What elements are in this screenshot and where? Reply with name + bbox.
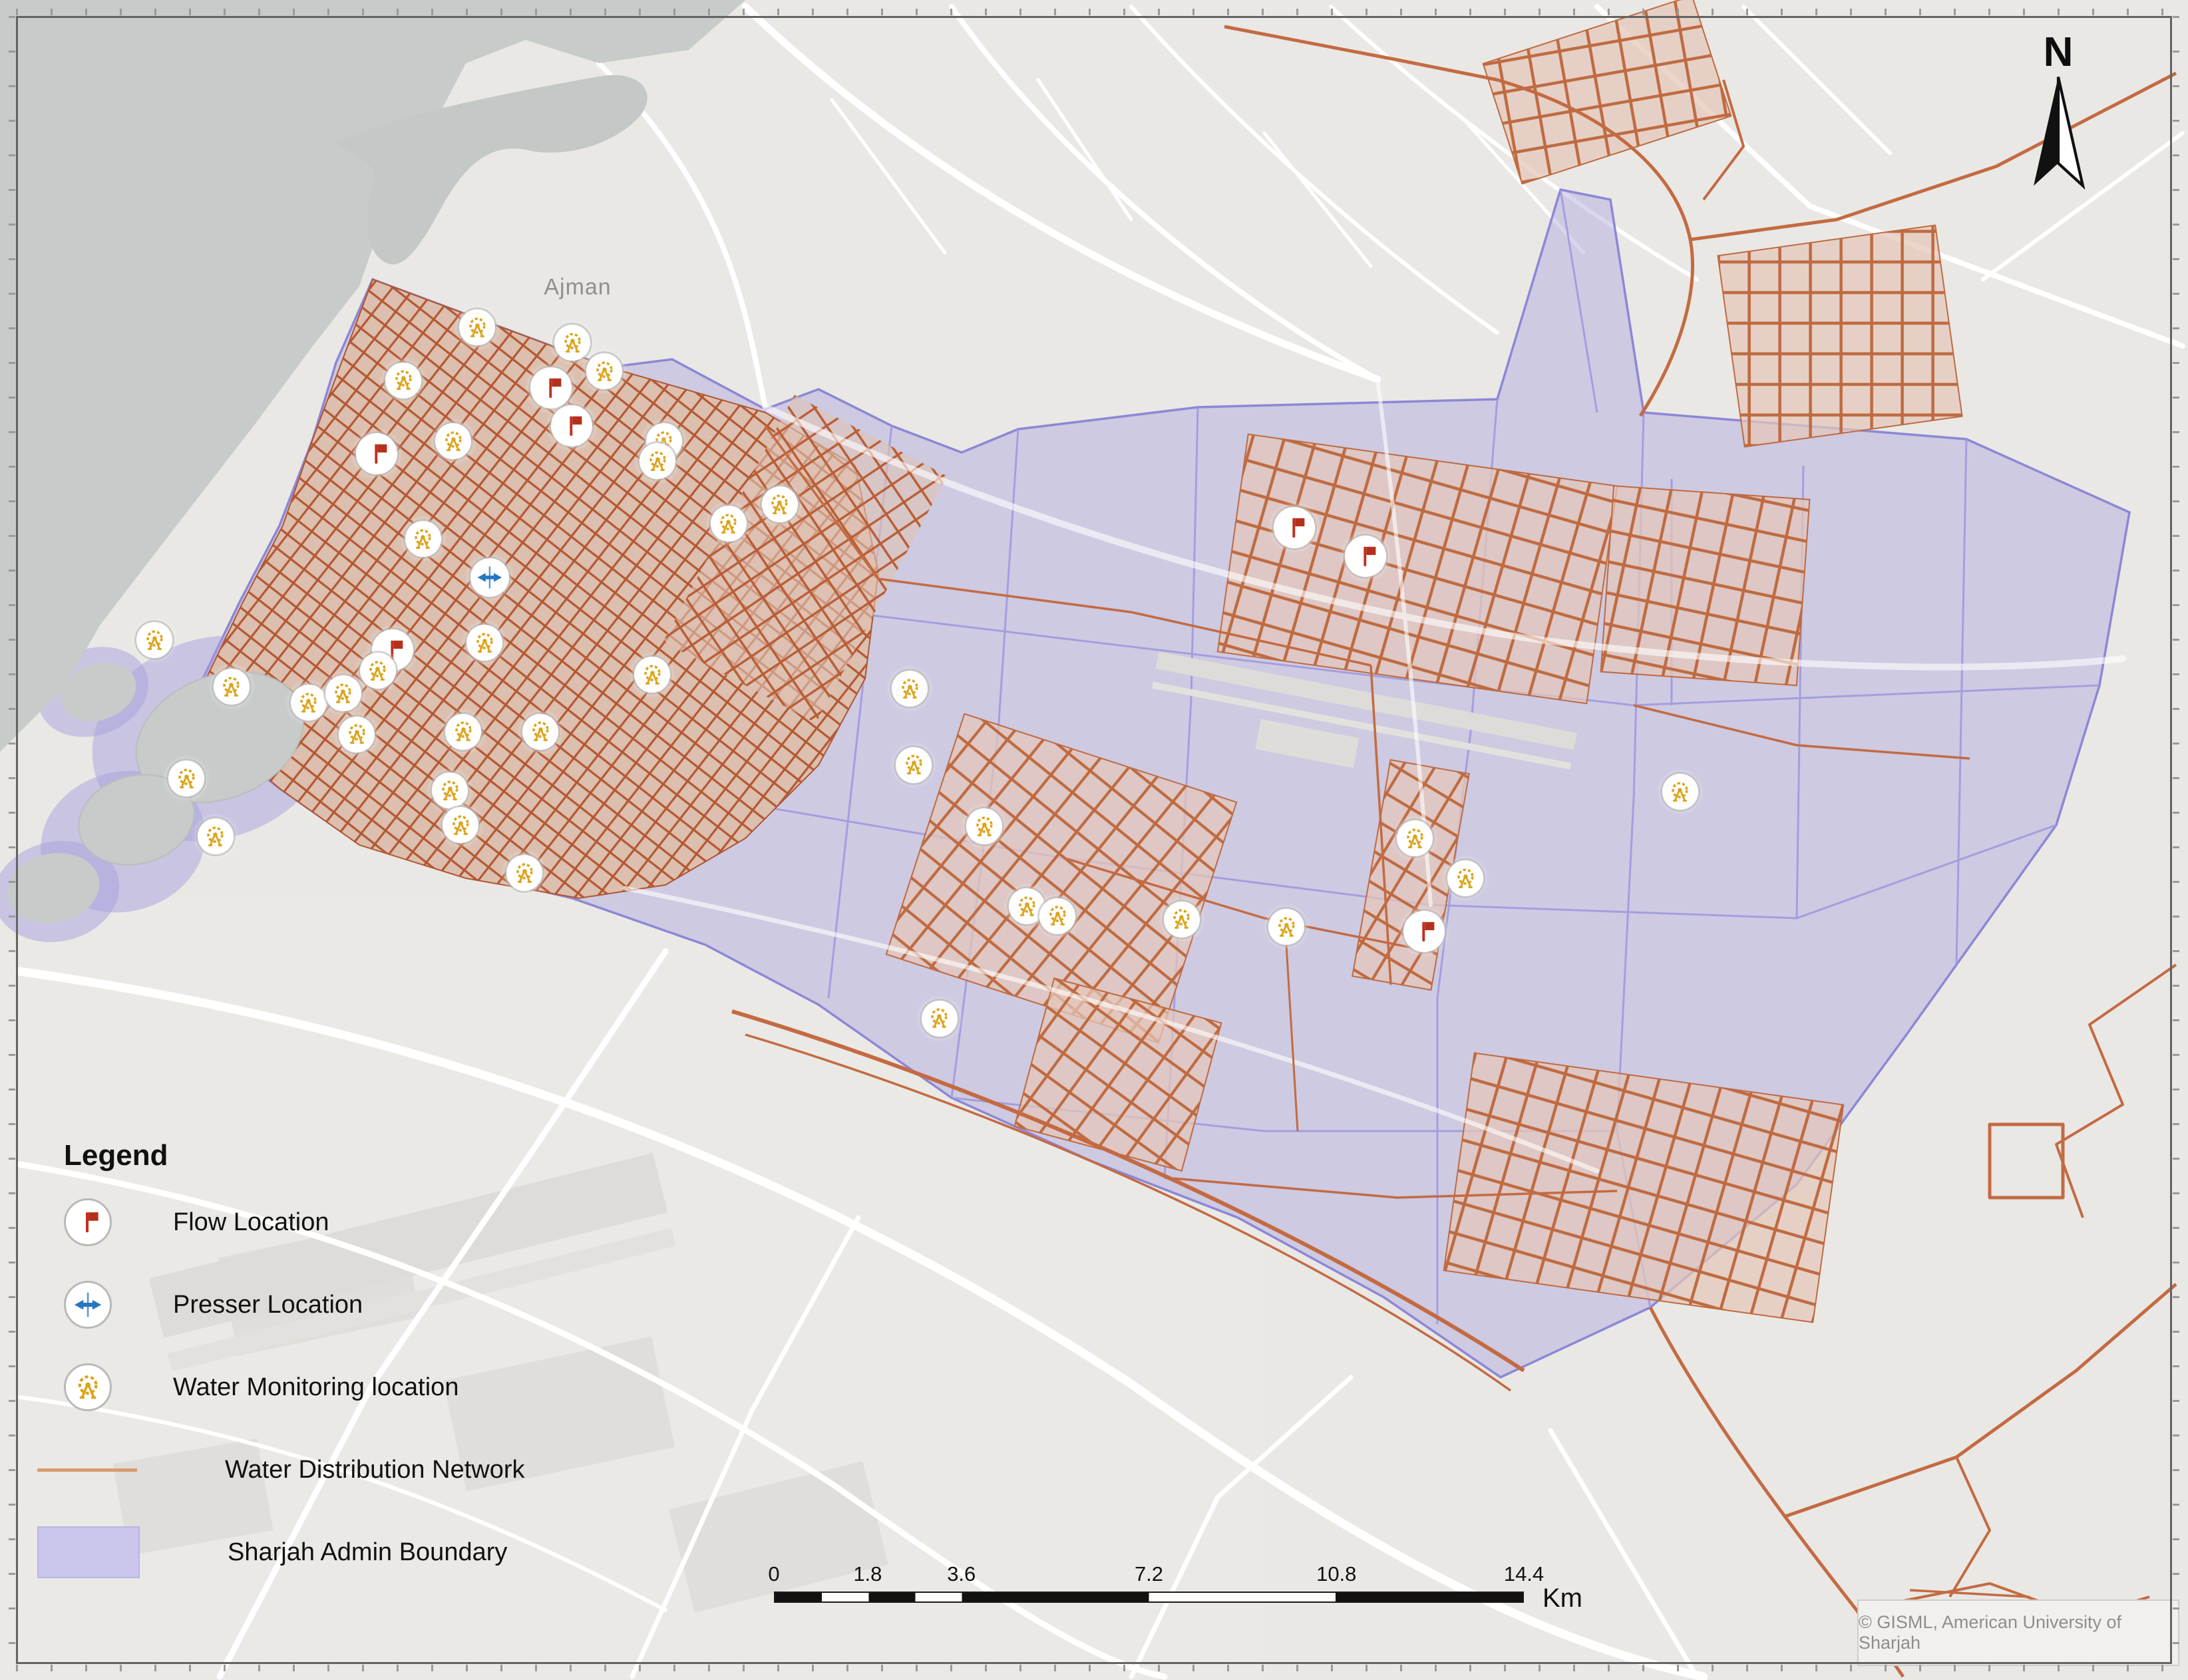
presser-arrows-icon [64, 1281, 112, 1329]
scale-bar-segments [774, 1592, 1524, 1603]
legend-item-presser-location: Presser Location [64, 1281, 525, 1328]
water-monitoring-marker [762, 486, 798, 522]
attribution-text: © GISML, American University of Sharjah [1859, 1612, 2178, 1653]
legend-item-label: Flow Location [173, 1208, 329, 1237]
flow-flag-icon [64, 1198, 112, 1246]
water-monitoring-marker [1662, 774, 1698, 810]
scale-tick-label: 3.6 [947, 1562, 976, 1586]
flow-location-marker [551, 405, 592, 446]
north-arrow: N [2008, 32, 2108, 196]
legend: Legend Flow Location Presser Location Wa… [64, 1139, 525, 1611]
flow-location-marker [356, 433, 397, 474]
water-monitoring-marker [325, 675, 361, 711]
water-monitoring-marker [586, 353, 622, 389]
presser-location-marker [470, 558, 509, 597]
legend-item-label: Presser Location [173, 1291, 363, 1319]
water-monitoring-marker [466, 625, 502, 661]
water-monitoring-marker [896, 747, 932, 783]
scale-bar-unit: Km [1543, 1584, 1582, 1613]
water-monitoring-marker [136, 622, 172, 658]
flow-location-marker [1403, 911, 1445, 952]
legend-title: Legend [64, 1139, 525, 1172]
water-monitoring-marker [459, 309, 495, 345]
legend-item-flow-location: Flow Location [64, 1199, 525, 1246]
legend-item-admin-boundary: Sharjah Admin Boundary [64, 1529, 525, 1576]
water-monitoring-marker [214, 669, 250, 705]
water-monitoring-marker [1447, 860, 1483, 896]
scale-bar: Km 01.83.67.210.814.4 [774, 1562, 1524, 1609]
water-monitoring-marker [892, 671, 928, 707]
water-monitoring-gauge-icon [64, 1363, 112, 1411]
water-monitoring-marker [522, 714, 558, 750]
water-monitoring-marker [385, 363, 421, 399]
water-monitoring-marker [1268, 909, 1304, 945]
water-monitoring-marker [1039, 898, 1075, 934]
scale-tick-label: 0 [768, 1562, 779, 1586]
north-label: N [2008, 32, 2108, 73]
scale-tick-label: 1.8 [853, 1562, 882, 1586]
water-monitoring-marker [432, 772, 468, 808]
water-monitoring-marker [506, 855, 542, 891]
water-monitoring-marker [168, 760, 204, 796]
scale-tick-label: 10.8 [1316, 1562, 1356, 1586]
network-line-swatch [37, 1468, 137, 1472]
water-monitoring-marker [639, 443, 675, 479]
water-monitoring-marker [554, 325, 590, 361]
map-layout-page: Ajman Legend Flow Location Presser Locat… [0, 0, 2188, 1680]
scale-tick-label: 14.4 [1504, 1562, 1544, 1586]
water-monitoring-marker [291, 685, 327, 721]
water-monitoring-marker [405, 521, 441, 557]
water-monitoring-marker [1397, 820, 1433, 856]
admin-boundary-swatch [37, 1526, 140, 1578]
water-monitoring-marker [966, 808, 1002, 844]
water-monitoring-marker [711, 506, 747, 542]
north-arrow-icon [2020, 73, 2097, 193]
legend-item-water-monitoring: Water Monitoring location [64, 1364, 525, 1411]
water-monitoring-marker [922, 1001, 958, 1037]
attribution-box: © GISML, American University of Sharjah [1857, 1599, 2179, 1666]
legend-item-label: Water Distribution Network [225, 1456, 525, 1484]
water-monitoring-marker [360, 653, 396, 689]
water-monitoring-marker [445, 714, 481, 750]
flow-location-marker [1345, 536, 1386, 577]
legend-item-distribution-network: Water Distribution Network [64, 1446, 525, 1493]
water-monitoring-marker [1164, 902, 1200, 937]
legend-item-label: Sharjah Admin Boundary [228, 1538, 507, 1567]
legend-item-label: Water Monitoring location [173, 1373, 458, 1402]
water-monitoring-marker [198, 818, 234, 854]
water-monitoring-marker [339, 717, 375, 753]
flow-location-marker [530, 367, 572, 409]
flow-location-marker [1274, 507, 1315, 548]
water-monitoring-marker [443, 807, 478, 843]
water-monitoring-marker [435, 423, 471, 459]
scale-tick-label: 7.2 [1135, 1562, 1163, 1586]
water-monitoring-marker [634, 657, 670, 693]
